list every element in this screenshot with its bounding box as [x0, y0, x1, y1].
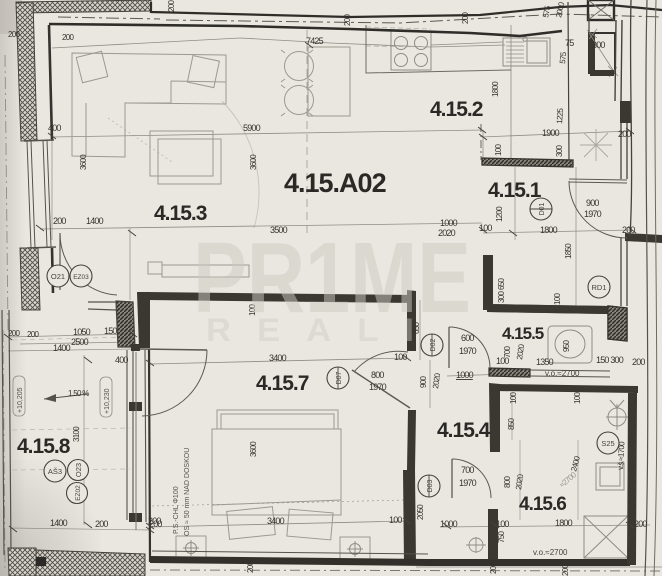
svg-text:1850: 1850 — [564, 243, 573, 259]
svg-text:200: 200 — [8, 329, 20, 338]
svg-text:S25: S25 — [601, 439, 614, 448]
svg-text:4.15.7: 4.15.7 — [256, 372, 309, 395]
svg-text:O23: O23 — [74, 463, 83, 477]
svg-text:750: 750 — [497, 531, 506, 543]
svg-text:400: 400 — [48, 123, 61, 133]
svg-text:3100: 3100 — [72, 426, 81, 442]
svg-text:4.15.4: 4.15.4 — [437, 419, 491, 442]
svg-text:1800: 1800 — [491, 81, 500, 97]
svg-text:200: 200 — [343, 14, 352, 26]
svg-text:1400: 1400 — [53, 343, 71, 353]
svg-text:3400: 3400 — [267, 516, 285, 526]
svg-text:1.50 %: 1.50 % — [68, 389, 89, 398]
svg-text:200: 200 — [622, 225, 635, 235]
svg-text:D01: D01 — [539, 202, 546, 215]
svg-text:1200: 1200 — [495, 206, 504, 222]
svg-text:EZ02: EZ02 — [75, 485, 82, 501]
svg-text:v.o.≈2700: v.o.≈2700 — [533, 548, 568, 557]
svg-text:3400: 3400 — [269, 353, 287, 363]
svg-text:900: 900 — [419, 376, 428, 388]
svg-text:1225: 1225 — [555, 107, 565, 124]
svg-text:2050: 2050 — [416, 504, 425, 520]
svg-text:1800: 1800 — [555, 518, 573, 528]
svg-text:+10,230: +10,230 — [104, 388, 111, 414]
svg-text:D03: D03 — [427, 479, 434, 492]
svg-text:1350: 1350 — [536, 357, 554, 367]
svg-text:200: 200 — [53, 216, 66, 226]
svg-text:4.15.2: 4.15.2 — [430, 98, 483, 121]
svg-text:100: 100 — [496, 356, 509, 366]
svg-text:200: 200 — [461, 12, 470, 24]
svg-text:1000: 1000 — [456, 370, 474, 380]
svg-text:3600: 3600 — [79, 154, 88, 170]
svg-text:200: 200 — [246, 561, 255, 573]
svg-text:700: 700 — [461, 465, 474, 475]
svg-text:1970: 1970 — [459, 478, 477, 488]
svg-text:100: 100 — [389, 515, 402, 525]
svg-text:300: 300 — [555, 145, 564, 157]
svg-text:200: 200 — [27, 330, 39, 339]
svg-text:3600: 3600 — [249, 441, 258, 457]
svg-text:100: 100 — [573, 392, 582, 404]
svg-text:D07: D07 — [336, 371, 343, 384]
svg-text:O21: O21 — [51, 272, 65, 281]
svg-text:400: 400 — [115, 355, 128, 365]
svg-text:800: 800 — [371, 370, 384, 380]
svg-text:RD1: RD1 — [591, 283, 606, 292]
svg-text:+10,205: +10,205 — [17, 387, 24, 413]
svg-text:200: 200 — [148, 516, 161, 526]
svg-text:v.o.≈2700: v.o.≈2700 — [545, 369, 580, 378]
svg-text:850: 850 — [507, 418, 516, 430]
svg-text:1970: 1970 — [584, 209, 602, 219]
svg-text:1800: 1800 — [540, 225, 558, 235]
svg-text:200: 200 — [62, 33, 74, 42]
svg-text:OS ≈ 50 mm NAD DOSKOU: OS ≈ 50 mm NAD DOSKOU — [184, 448, 191, 536]
svg-text:5900: 5900 — [243, 123, 261, 133]
svg-text:1400: 1400 — [86, 216, 104, 226]
svg-text:1900: 1900 — [542, 128, 560, 138]
svg-text:100: 100 — [509, 392, 518, 404]
svg-text:100: 100 — [494, 144, 503, 156]
svg-text:AŠ3: AŠ3 — [48, 467, 62, 476]
svg-text:1400: 1400 — [50, 518, 68, 528]
svg-text:900: 900 — [586, 198, 599, 208]
svg-text:650: 650 — [497, 278, 506, 290]
svg-text:2000: 2000 — [561, 560, 570, 576]
svg-text:950: 950 — [562, 340, 571, 352]
svg-text:4.15.6: 4.15.6 — [519, 494, 566, 515]
svg-text:4.15.A02: 4.15.A02 — [284, 168, 386, 198]
svg-text:1970: 1970 — [459, 346, 477, 356]
svg-text:150 300: 150 300 — [596, 355, 624, 365]
svg-text:150: 150 — [104, 326, 117, 336]
svg-text:200: 200 — [167, 0, 176, 12]
svg-text:200: 200 — [632, 357, 645, 367]
svg-text:4.15.5: 4.15.5 — [502, 324, 544, 343]
svg-text:1970: 1970 — [369, 382, 387, 392]
svg-text:3600: 3600 — [249, 154, 258, 170]
svg-text:2500: 2500 — [71, 337, 89, 347]
svg-text:800: 800 — [503, 476, 512, 488]
svg-text:200: 200 — [634, 519, 647, 529]
svg-text:P.S.-CHL Φ100: P.S.-CHL Φ100 — [173, 486, 180, 534]
svg-text:4.15.8: 4.15.8 — [17, 435, 71, 458]
svg-text:200: 200 — [95, 519, 108, 529]
svg-text:200: 200 — [8, 30, 20, 39]
svg-text:1050: 1050 — [73, 327, 91, 337]
svg-text:EZ03: EZ03 — [73, 274, 89, 281]
svg-text:100: 100 — [553, 293, 562, 305]
svg-text:300: 300 — [497, 291, 506, 303]
svg-text:600: 600 — [461, 333, 474, 343]
svg-text:2000: 2000 — [489, 558, 498, 574]
svg-text:300: 300 — [592, 40, 605, 50]
svg-text:75: 75 — [565, 38, 574, 48]
svg-text:REALI: REALI — [206, 312, 440, 348]
svg-text:4.15.1: 4.15.1 — [488, 179, 542, 202]
